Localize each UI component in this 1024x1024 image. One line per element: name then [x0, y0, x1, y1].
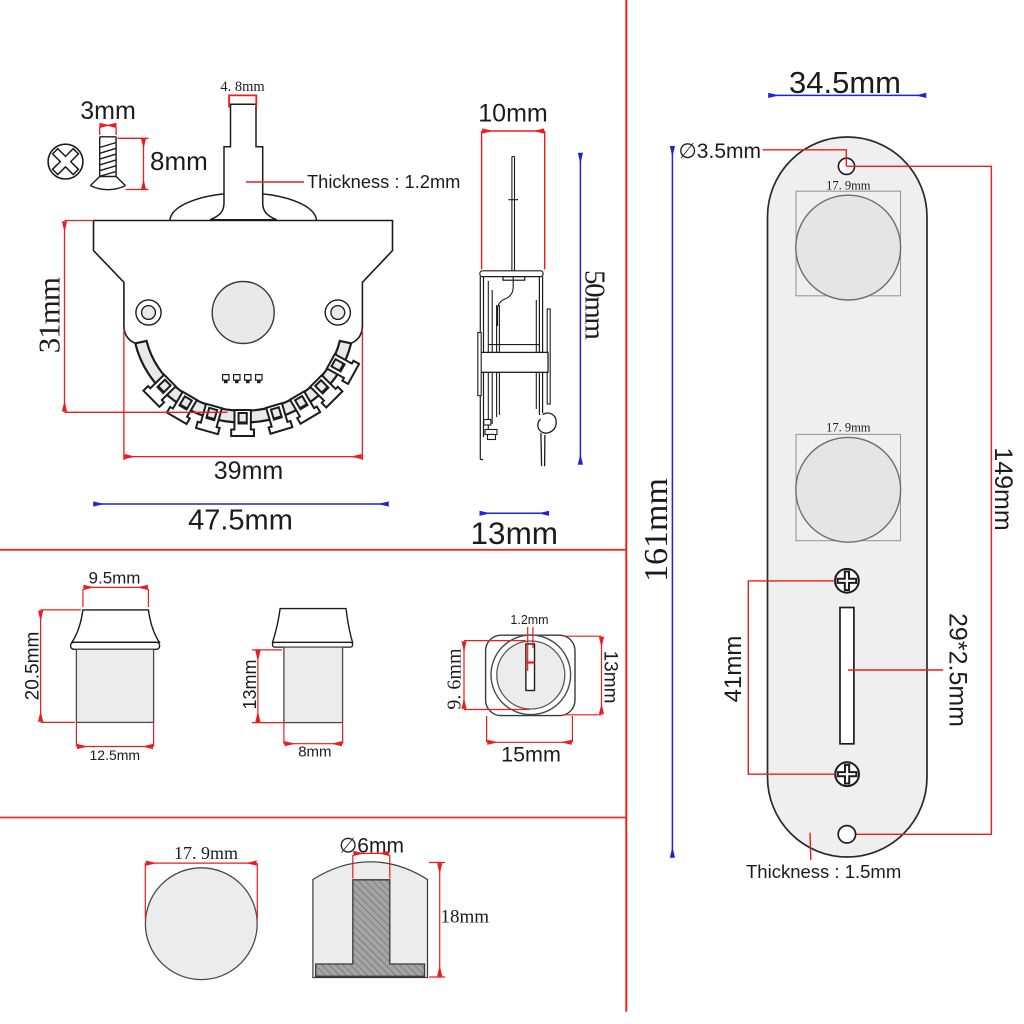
svg-text:17. 9mm: 17. 9mm — [826, 178, 871, 192]
svg-text:∅3.5mm: ∅3.5mm — [679, 140, 761, 163]
svg-text:39mm: 39mm — [214, 457, 283, 485]
svg-text:15mm: 15mm — [501, 743, 561, 767]
svg-text:9. 6mm: 9. 6mm — [444, 648, 466, 710]
svg-text:29*2.5mm: 29*2.5mm — [944, 613, 972, 727]
svg-text:50mm: 50mm — [579, 270, 611, 340]
svg-text:4. 8mm: 4. 8mm — [220, 79, 265, 95]
svg-text:13mm: 13mm — [471, 515, 559, 551]
svg-text:41mm: 41mm — [720, 636, 747, 703]
svg-text:31mm: 31mm — [32, 277, 67, 353]
svg-text:10mm: 10mm — [478, 99, 547, 127]
svg-text:1.2mm: 1.2mm — [510, 613, 548, 627]
svg-text:17. 9mm: 17. 9mm — [174, 843, 238, 863]
svg-text:18mm: 18mm — [441, 907, 490, 928]
svg-text:∅6mm: ∅6mm — [339, 835, 404, 858]
svg-text:17. 9mm: 17. 9mm — [826, 421, 871, 435]
svg-text:161mm: 161mm — [638, 478, 675, 582]
svg-text:13mm: 13mm — [600, 651, 621, 704]
svg-text:Thickness : 1.5mm: Thickness : 1.5mm — [746, 861, 901, 882]
svg-text:20.5mm: 20.5mm — [23, 632, 44, 701]
svg-text:8mm: 8mm — [150, 146, 208, 176]
svg-text:149mm: 149mm — [989, 447, 1017, 530]
svg-text:12.5mm: 12.5mm — [90, 747, 141, 763]
svg-text:8mm: 8mm — [298, 744, 331, 761]
svg-text:13mm: 13mm — [240, 659, 260, 709]
svg-text:Thickness : 1.2mm: Thickness : 1.2mm — [307, 171, 460, 192]
svg-text:9.5mm: 9.5mm — [89, 569, 141, 588]
svg-text:3mm: 3mm — [80, 97, 136, 125]
svg-text:34.5mm: 34.5mm — [789, 65, 901, 100]
svg-text:47.5mm: 47.5mm — [188, 505, 293, 537]
